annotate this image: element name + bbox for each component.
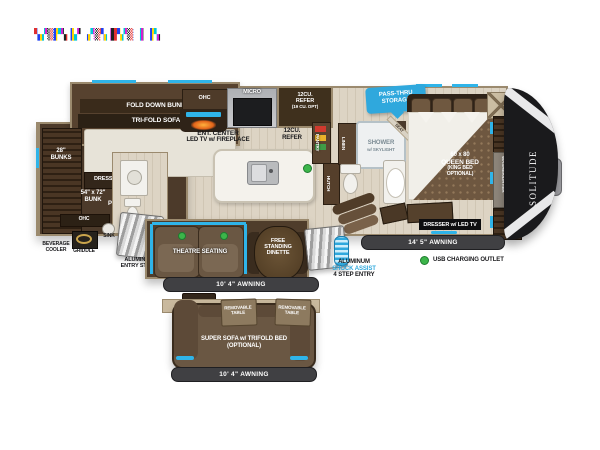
fireplace-glow-icon — [191, 120, 216, 130]
pantry-label: PANTRY — [315, 124, 320, 162]
sofa-arm-icon — [174, 300, 198, 360]
toilet-icon — [343, 173, 358, 194]
refrigerator-label: 12CU.REFER (19 CU. OPT) — [277, 92, 333, 109]
usb-outlet-dot-icon — [303, 164, 312, 173]
wall-accent-icon — [490, 216, 493, 228]
theatre-seating-label: THEATRE SEATING — [154, 249, 246, 256]
refer-floor-label: 12CU.REFER — [274, 128, 310, 141]
hutch-label: HUTCH — [326, 166, 331, 202]
kitchen-ohc-label: OHC — [182, 95, 227, 101]
slide-trim-icon — [152, 222, 246, 225]
sofa-trim-icon — [176, 356, 194, 360]
wall-accent-icon — [490, 122, 493, 134]
led-tv-icon — [431, 231, 457, 234]
griddle-label: GRIDDLE — [70, 249, 98, 255]
bath-sink-icon — [386, 168, 405, 198]
shock-assist-label: ALUMINUM SHOCK ASSIST 4 STEP ENTRY — [312, 259, 396, 279]
linen-label: LINEN — [341, 126, 346, 162]
bunk-bath-sink-icon — [127, 170, 142, 185]
slideout-trim-icon — [168, 80, 212, 83]
awning-bar-left: 10' 4" AWNING — [163, 277, 319, 292]
floorplan-image: ▚▞▒▛▚▐▞ ▞▒▚▐▛▞▒ ▌▐▚ FOLD DOWN BUNK TRI-F… — [0, 0, 600, 450]
corrupted-model-text: ▚▞▒▛▚▐▞ ▞▒▚▐▛▞▒ ▌▐▚ — [34, 28, 184, 44]
tv-screen-icon — [186, 112, 221, 117]
griddle-burner-icon — [76, 234, 92, 244]
awning-optional-label: 10' 4" AWNING — [219, 371, 268, 378]
dinette-label: FREESTANDINGDINETTE — [258, 238, 298, 256]
bedroom-trim-icon — [452, 84, 478, 87]
solitude-brand-label: SOLITUDE — [528, 124, 538, 206]
faucet-icon — [269, 169, 273, 173]
awning-bar-right: 14' 5" AWNING — [361, 235, 505, 250]
awning-right-label: 14' 5" AWNING — [408, 239, 457, 246]
shower-label: SHOWERw/ SKYLIGHT — [356, 140, 406, 152]
slide-trim-icon — [150, 224, 153, 274]
oven-icon — [233, 98, 272, 126]
sink-bowl-icon — [251, 164, 267, 182]
queen-bed-label: 60 x 80QUEEN BED (KING BEDOPTIONAL) — [428, 152, 492, 177]
awning-left-label: 10' 4" AWNING — [216, 281, 265, 288]
sofa-trim-icon — [290, 356, 308, 360]
dresser-tv-label: DRESSER w/ LED TV — [419, 222, 481, 228]
bunk-ohc-label: OHC — [60, 217, 108, 223]
wall-accent-icon — [490, 172, 493, 184]
microwave-label: MICRO — [229, 89, 275, 95]
bunks-label: 28"BUNKS — [42, 148, 80, 161]
awning-bar-optional: 10' 4" AWNING — [171, 367, 317, 382]
removable-table-label: REMOVABLETABLE — [275, 304, 309, 315]
ent-center-label: ENT. CENTERLED TV w/ FIREPLACE — [168, 130, 268, 144]
usb-outlet-dot-icon — [220, 232, 228, 240]
removable-table-label: REMOVABLETABLE — [221, 304, 255, 315]
usb-legend-dot-icon — [420, 256, 429, 265]
usb-outlet-dot-icon — [178, 232, 186, 240]
front-cap: SOLITUDE — [504, 88, 558, 240]
usb-legend-label: USB CHARGING OUTLET — [433, 257, 513, 264]
slideout-trim-icon — [92, 80, 136, 83]
rear-window-accent — [36, 148, 39, 168]
super-sofa-label: SUPER SOFA w/ TRIFOLD BED(OPTIONAL) — [196, 336, 292, 349]
